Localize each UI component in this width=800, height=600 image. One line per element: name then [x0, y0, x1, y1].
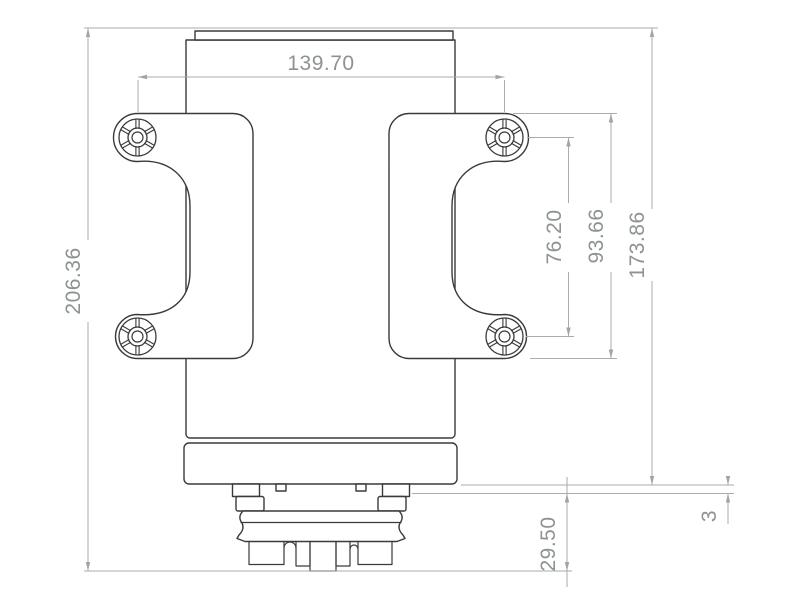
terminal-gap-arch-right	[350, 545, 358, 549]
connector-body	[237, 511, 405, 542]
arrow-top	[726, 476, 730, 485]
device-outline	[114, 31, 529, 571]
terminal-mid-right	[336, 542, 350, 567]
terminal-right	[358, 542, 392, 565]
top-cap	[195, 31, 453, 40]
screw-boss-top-right	[486, 119, 523, 156]
arrow-bottom	[726, 494, 730, 503]
dimension-height-to-mounting-face: 173.86	[626, 28, 654, 485]
standoff-neck-right	[383, 484, 410, 497]
terminal-gap-arch-left	[284, 542, 296, 548]
arrow-left	[138, 75, 147, 79]
arrow-bottom	[609, 350, 613, 359]
dimension-label: 29.50	[537, 516, 560, 571]
dimension-label: 3	[698, 510, 721, 522]
nut-right	[378, 497, 406, 512]
dimension-overall-height: 206.36	[62, 28, 90, 571]
screw-boss-bottom-right	[486, 318, 523, 355]
dimension-mounting-plate-height: 93.66	[585, 114, 613, 359]
arrow-top	[566, 138, 570, 147]
small-tab-left	[276, 484, 286, 491]
arrow-top	[86, 28, 90, 37]
bottom-flange	[184, 443, 457, 484]
screw-boss-top-left	[119, 119, 156, 156]
dimension-label: 139.70	[287, 52, 354, 75]
arrow-bottom	[86, 562, 90, 571]
standoff-neck-left	[233, 484, 260, 497]
technical-drawing-page: 139.70 206.36 76.20 93.66 173.86 29	[0, 0, 800, 600]
arrow-right	[496, 75, 505, 79]
dimension-hole-spacing-vertical: 76.20	[543, 138, 571, 337]
dimension-label: 76.20	[543, 209, 566, 264]
terminal-left	[249, 542, 284, 565]
arrow-bottom	[566, 328, 570, 337]
arrow-bottom	[565, 562, 569, 571]
small-tab-right	[356, 484, 366, 491]
arrow-top	[609, 114, 613, 123]
nut-left	[236, 497, 264, 512]
technical-drawing-canvas: 139.70 206.36 76.20 93.66 173.86 29	[0, 0, 800, 600]
dimension-boss-standoff: 3	[698, 476, 730, 524]
arrow-top	[565, 494, 569, 503]
screw-boss-bottom-left	[119, 318, 156, 355]
terminal-center	[310, 542, 336, 572]
arrow-top	[650, 28, 654, 37]
terminal-mid-left	[296, 542, 310, 567]
dimension-label: 206.36	[62, 247, 85, 314]
dimension-label: 173.86	[626, 211, 649, 278]
dimension-label: 93.66	[585, 208, 608, 263]
arrow-bottom	[650, 476, 654, 485]
